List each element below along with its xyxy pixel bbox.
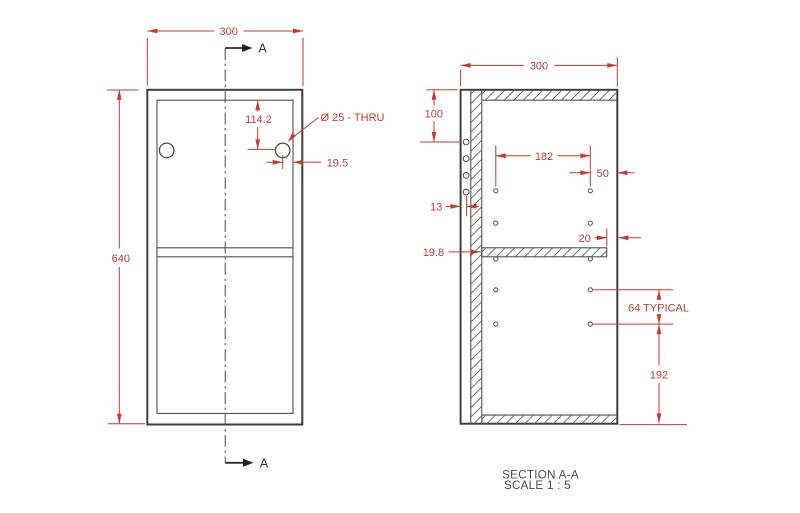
top-board-hatch (482, 90, 618, 100)
dim-back-hole-text: 13 (430, 201, 442, 213)
section-label-bottom: A (260, 456, 269, 470)
arrowhead (432, 132, 437, 142)
arrowhead (580, 170, 590, 175)
arrowhead (117, 414, 122, 424)
dim-front-height: 640 (107, 90, 145, 424)
arrowhead (580, 153, 590, 158)
arrowhead (255, 139, 260, 149)
hatch-lines (482, 90, 618, 100)
arrowhead (657, 324, 662, 334)
arrowhead (255, 100, 260, 110)
dim-front-hole: 50 (570, 168, 635, 180)
arrowhead (597, 235, 607, 240)
arrowhead (293, 29, 303, 34)
dim-shelf-setback-text: 20 (578, 233, 590, 245)
dim-shelf-thickness: 19.8 (423, 247, 481, 259)
pin-holes-right-column (588, 189, 592, 327)
section-caption-scale: SCALE 1 : 5 (504, 479, 571, 492)
arrowhead (117, 90, 122, 100)
dim-front-height-text: 640 (112, 253, 130, 265)
dim-section-depth-text: 300 (530, 60, 548, 72)
arrowhead (496, 153, 506, 158)
dim-hole-offset: 114.2 (245, 100, 275, 149)
pin-holes-left-column (494, 189, 498, 327)
arrowhead (617, 170, 627, 175)
arrowhead (451, 204, 461, 209)
dim-hole-span: 182 (496, 146, 591, 187)
back-system-holes (463, 139, 469, 195)
drawing-canvas: A A 300 640 (0, 0, 800, 513)
section-view: 300 100 182 50 (420, 57, 689, 492)
arrowhead (288, 133, 296, 142)
dim-back-hole: 13 (430, 196, 479, 216)
dim-front-hole-text: 50 (597, 168, 609, 180)
section-arrow-icon (243, 459, 254, 467)
dim-hole-pitch-text: 64 TYPICAL (628, 303, 689, 315)
dim-front-width-text: 300 (220, 26, 238, 38)
dim-hole-edge-text: 19.5 (327, 158, 348, 170)
arrowhead (618, 235, 628, 240)
drawing-sheet: A A 300 640 (0, 0, 800, 513)
arrowhead (293, 160, 303, 165)
section-arrow-top: A (225, 42, 267, 56)
section-arrow-icon (242, 44, 253, 52)
dim-hole-offset-text: 114.2 (245, 114, 272, 126)
dim-bottom-span: 192 (620, 324, 688, 425)
arrowhead (657, 290, 662, 300)
hatch-lines (482, 248, 607, 257)
dim-hole-pitch: 64 TYPICAL (593, 290, 689, 324)
dim-shelf-thickness-text: 19.8 (423, 247, 444, 259)
arrowhead (461, 63, 471, 68)
arrowhead (432, 90, 437, 100)
bottom-board-hatch (482, 415, 618, 424)
section-label-top: A (258, 42, 267, 56)
hatch-lines (471, 90, 482, 424)
dim-top-hole-text: 100 (425, 108, 443, 120)
section-caption: SECTION A-A SCALE 1 : 5 (502, 468, 579, 492)
dim-shelf-setback: 20 (578, 229, 641, 247)
dim-section-depth: 300 (461, 57, 618, 87)
hole-callout-text: Ø 25 - THRU (321, 112, 385, 124)
front-hole-left (159, 143, 174, 158)
dim-hole-span-text: 182 (535, 151, 553, 163)
section-view-outline (461, 90, 618, 424)
arrowhead (607, 63, 617, 68)
front-view: A A 300 640 (107, 26, 385, 470)
dim-bottom-span-text: 192 (650, 369, 668, 381)
arrowhead (467, 204, 477, 209)
arrowhead (657, 413, 662, 423)
arrowhead (147, 29, 157, 34)
arrowhead (657, 314, 662, 324)
arrowhead (273, 160, 283, 165)
arrowhead (471, 250, 481, 255)
dim-top-hole: 100 (420, 90, 462, 142)
section-arrow-bottom: A (225, 456, 269, 470)
hatch-lines (482, 415, 618, 424)
